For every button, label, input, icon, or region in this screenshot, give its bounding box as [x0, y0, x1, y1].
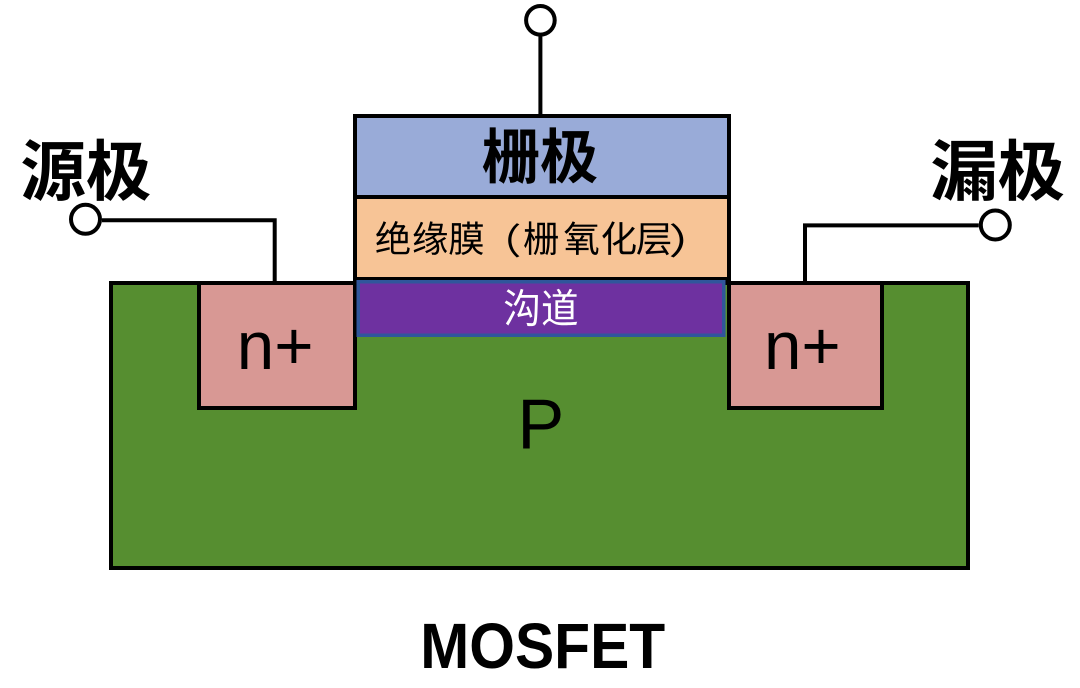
svg-text:n+: n+ — [764, 309, 841, 384]
svg-text:P: P — [517, 385, 564, 464]
svg-text:n+: n+ — [237, 309, 314, 384]
svg-text:MOSFET: MOSFET — [420, 610, 665, 682]
